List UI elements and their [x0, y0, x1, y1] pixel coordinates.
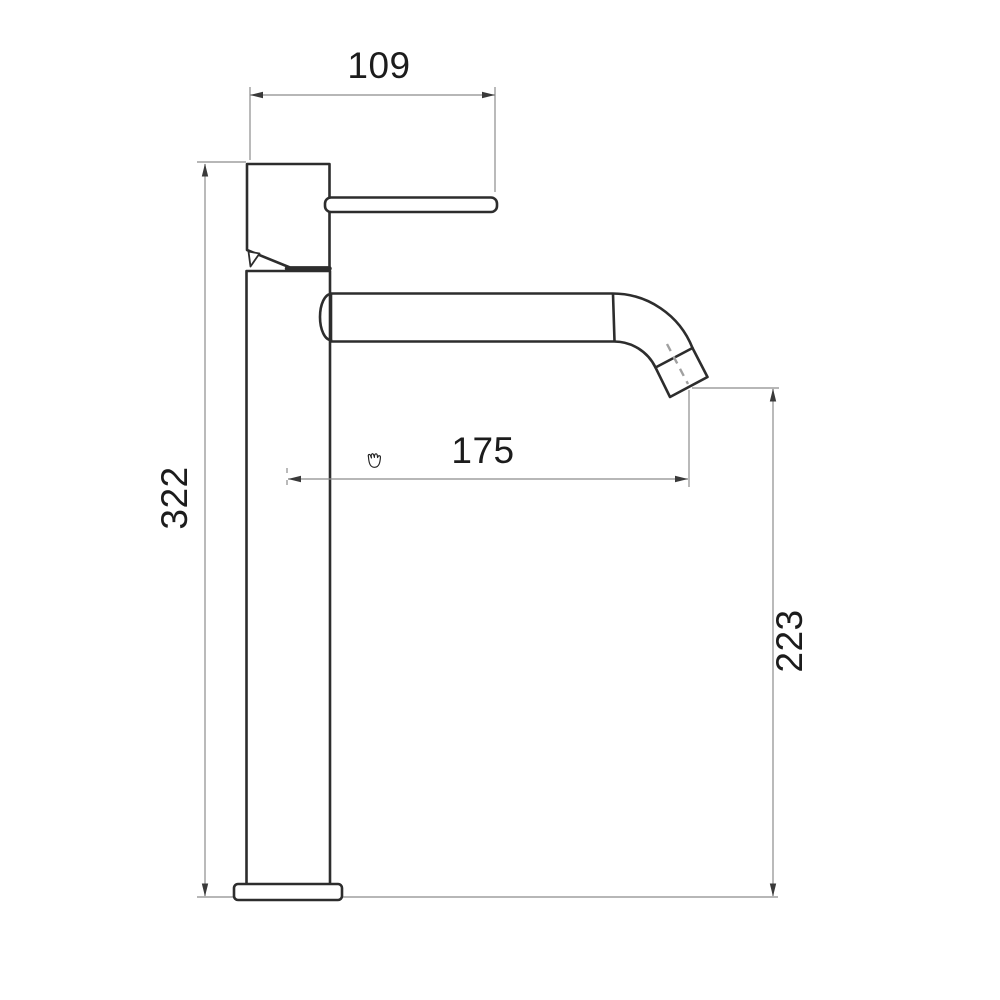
spout-bend-joint-line	[613, 294, 615, 341]
faucet-base-plate	[234, 884, 342, 900]
dimension-label-322: 322	[154, 466, 195, 529]
dimension-label-223: 223	[769, 609, 810, 672]
dimension-spout-reach: 175	[287, 390, 689, 490]
hand-grab-cursor-icon	[368, 454, 380, 468]
faucet-column	[247, 271, 331, 886]
arrow-down-icon	[202, 884, 208, 897]
arrow-right-icon	[482, 92, 495, 98]
hand-cursor-shape	[368, 454, 380, 468]
faucet-dimension-drawing: 109 322 175 223	[0, 0, 1000, 1000]
dimension-lines-223	[692, 388, 779, 896]
technical-drawing-canvas: 109 322 175 223	[0, 0, 1000, 1000]
faucet-handle-lever	[325, 198, 497, 213]
arrow-right-icon	[675, 476, 688, 482]
handle-pivot-detail	[249, 252, 260, 267]
dimension-overall-height: 322	[154, 162, 246, 897]
dimension-label-175: 175	[451, 430, 514, 471]
dimension-outlet-height: 223	[692, 388, 810, 897]
faucet-outline	[234, 164, 708, 900]
arrow-up-icon	[770, 389, 776, 402]
arrow-left-icon	[250, 92, 263, 98]
faucet-spout	[331, 293, 708, 397]
dimension-label-109: 109	[347, 45, 410, 86]
dimension-lines-322	[197, 162, 246, 896]
arrow-up-icon	[202, 164, 208, 177]
faucet-body	[247, 164, 330, 268]
arrow-down-icon	[770, 884, 776, 897]
